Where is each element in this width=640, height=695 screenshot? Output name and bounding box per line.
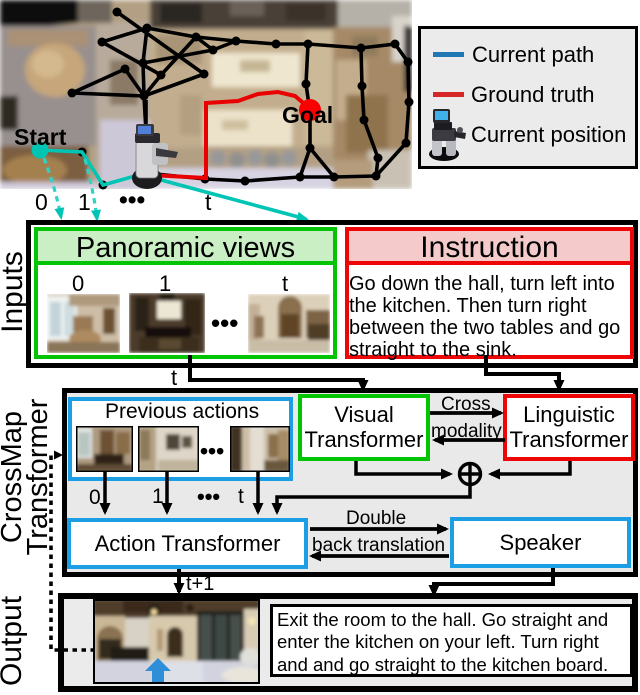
svg-text:t: t [171, 365, 177, 390]
svg-text:Start: Start [14, 124, 67, 150]
svg-text:•••: ••• [119, 186, 145, 214]
svg-text:t: t [205, 189, 212, 215]
svg-text:1: 1 [78, 189, 91, 215]
svg-text:Goal: Goal [282, 102, 333, 128]
svg-text:0: 0 [35, 189, 48, 215]
